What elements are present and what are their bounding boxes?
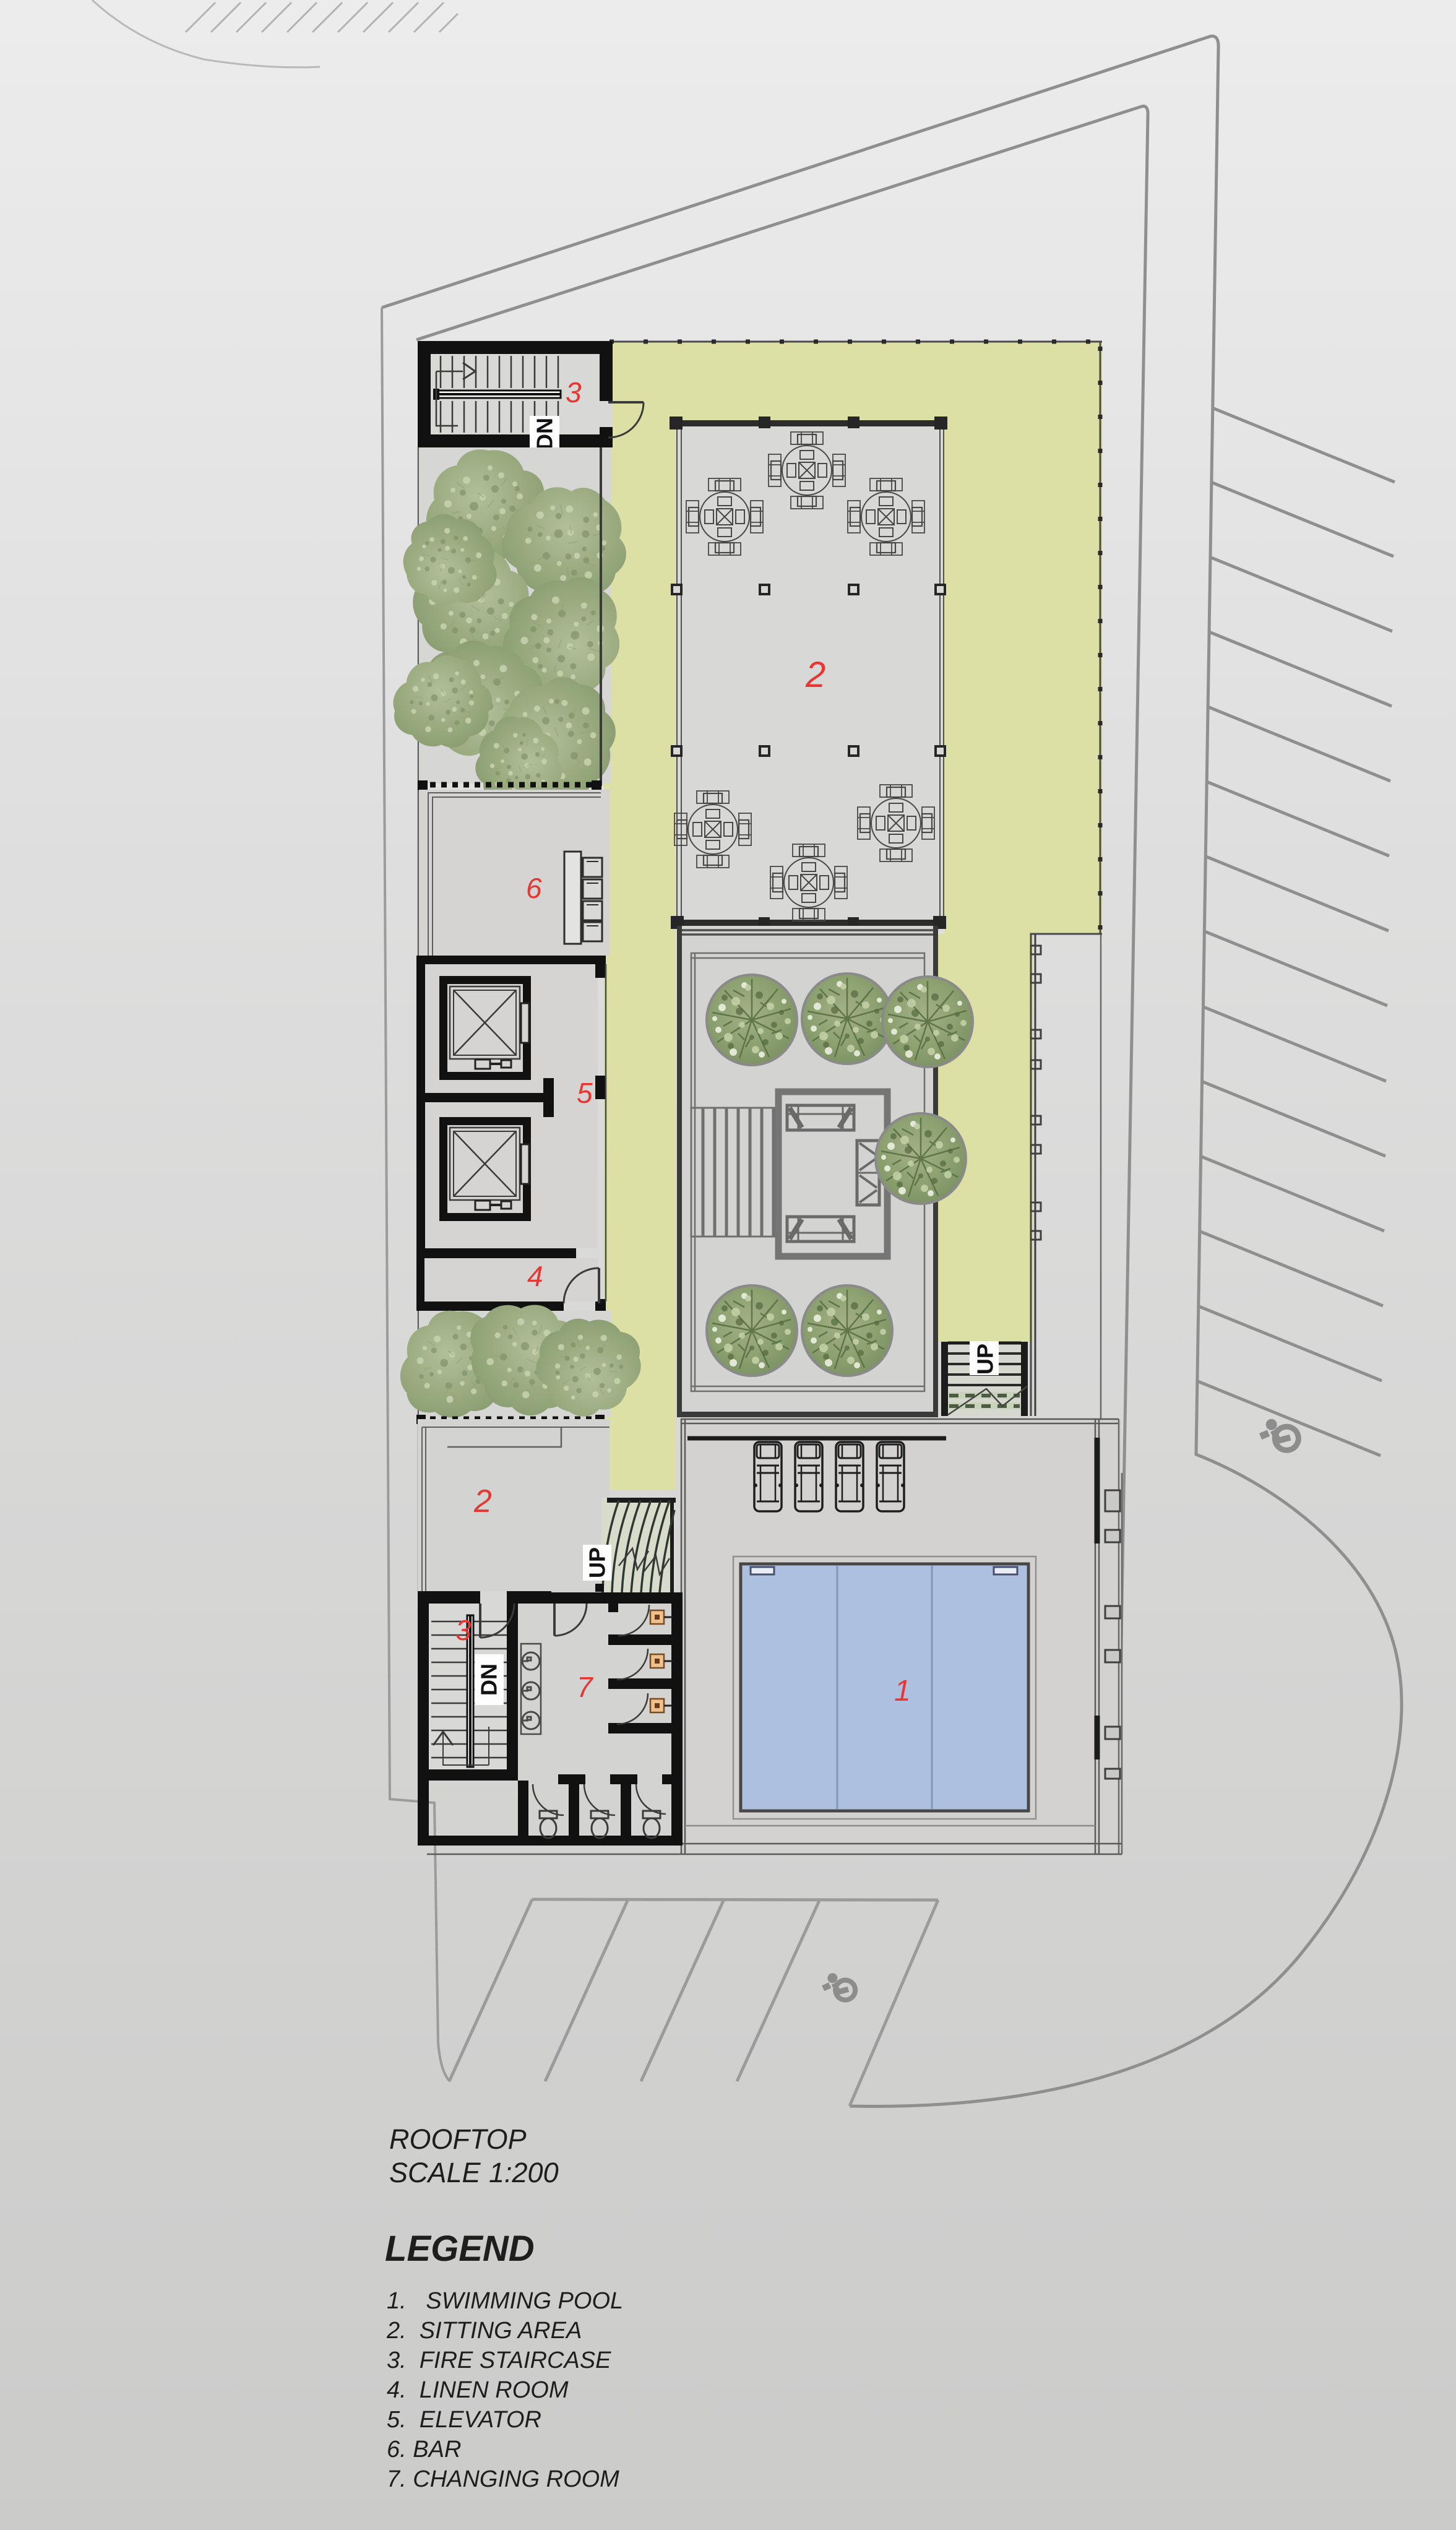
svg-text:7. CHANGING ROOM: 7. CHANGING ROOM xyxy=(387,2466,619,2492)
svg-text:4. LINEN ROOM: 4. LINEN ROOM xyxy=(387,2377,569,2403)
svg-text:2. SITTING AREA: 2. SITTING AREA xyxy=(386,2318,582,2344)
svg-text:LEGEND: LEGEND xyxy=(385,2229,535,2269)
svg-text:1:200: 1:200 xyxy=(489,2157,559,2188)
svg-text:UP: UP xyxy=(973,1344,998,1375)
svg-text:2: 2 xyxy=(805,655,825,695)
svg-text:ROOFTOP: ROOFTOP xyxy=(389,2123,527,2155)
svg-text:4: 4 xyxy=(527,1260,543,1292)
svg-text:2: 2 xyxy=(473,1483,492,1519)
svg-text:1: 1 xyxy=(894,1675,911,1708)
svg-text:DN: DN xyxy=(532,418,558,450)
svg-text:6. BAR: 6. BAR xyxy=(387,2437,461,2463)
svg-text:3. FIRE STAIRCASE: 3. FIRE STAIRCASE xyxy=(387,2347,611,2373)
svg-text:3: 3 xyxy=(455,1614,472,1646)
svg-text:SCALE: SCALE xyxy=(389,2157,481,2188)
svg-text:7: 7 xyxy=(577,1671,593,1703)
svg-text:DN: DN xyxy=(476,1664,502,1696)
svg-text:5. ELEVATOR: 5. ELEVATOR xyxy=(387,2407,541,2433)
svg-text:1. SWIMMING POOL: 1. SWIMMING POOL xyxy=(387,2288,623,2314)
svg-text:6: 6 xyxy=(526,872,542,904)
svg-text:5: 5 xyxy=(577,1077,593,1109)
svg-text:3: 3 xyxy=(566,376,582,408)
svg-text:UP: UP xyxy=(585,1547,610,1578)
